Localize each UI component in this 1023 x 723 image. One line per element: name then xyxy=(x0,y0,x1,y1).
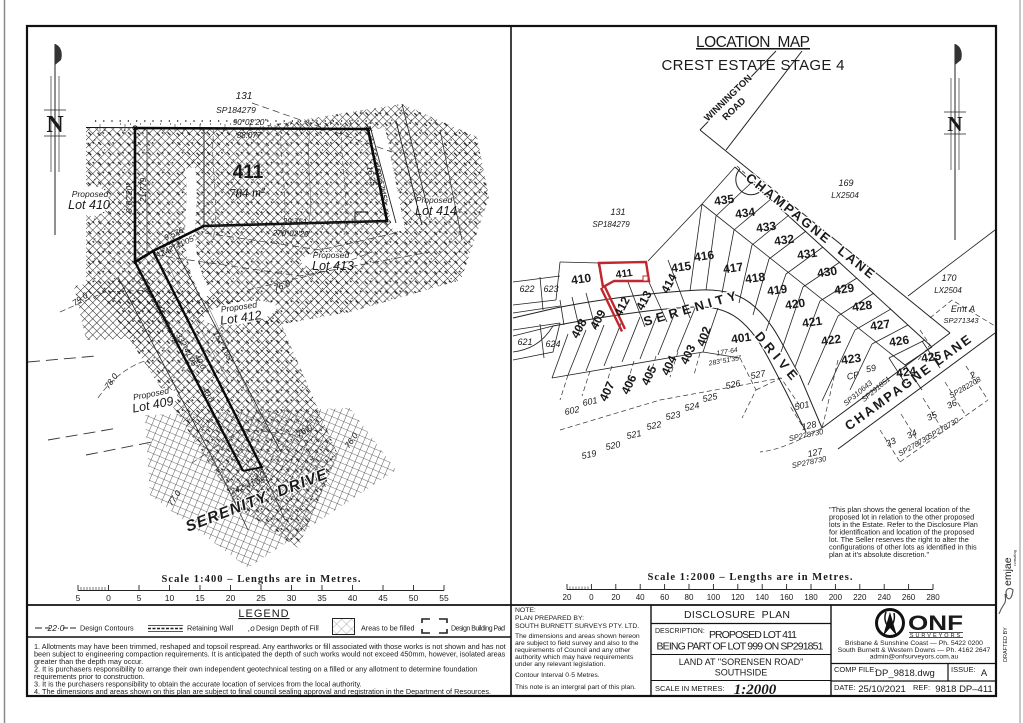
svg-text:411: 411 xyxy=(233,162,264,183)
svg-text:SOUTH BURNETT SURVEYS PTY. LTD: SOUTH BURNETT SURVEYS PTY. LTD. xyxy=(515,623,639,630)
svg-text:427: 427 xyxy=(869,317,891,334)
svg-text:409: 409 xyxy=(587,307,609,332)
svg-text:Design Depth of Fill: Design Depth of Fill xyxy=(256,624,319,633)
svg-text:50: 50 xyxy=(409,593,419,603)
svg-text:405: 405 xyxy=(638,363,659,387)
svg-text:SOUTHSIDE: SOUTHSIDE xyxy=(715,668,768,678)
svg-text:80: 80 xyxy=(685,593,694,602)
svg-text:260: 260 xyxy=(902,593,916,602)
svg-text:406: 406 xyxy=(618,372,639,396)
svg-text:,o: ,o xyxy=(248,624,255,633)
svg-text:0: 0 xyxy=(106,593,111,603)
svg-text:SP184279: SP184279 xyxy=(216,105,256,115)
svg-text:DESCRIPTION:: DESCRIPTION: xyxy=(655,628,705,635)
svg-text:131: 131 xyxy=(610,207,625,217)
svg-text:15: 15 xyxy=(195,593,205,603)
svg-text:35: 35 xyxy=(317,593,327,603)
svg-text:623: 623 xyxy=(543,284,558,294)
svg-text:20: 20 xyxy=(611,593,620,602)
svg-text:526: 526 xyxy=(725,378,742,391)
svg-text:Areas to be filled: Areas to be filled xyxy=(361,624,415,633)
svg-text:40: 40 xyxy=(636,593,645,602)
svg-text:Lot 414: Lot 414 xyxy=(415,204,457,218)
svg-text:COMP FILE:: COMP FILE: xyxy=(834,665,876,674)
svg-text:Retaining Wall: Retaining Wall xyxy=(187,624,233,633)
svg-text:under any relevant legislation: under any relevant legislation. xyxy=(515,661,605,668)
svg-text:Design Contours: Design Contours xyxy=(80,624,134,633)
svg-text:PROPOSED LOT 411: PROPOSED LOT 411 xyxy=(709,629,797,641)
svg-text:SP282208: SP282208 xyxy=(948,374,984,400)
svg-text:131: 131 xyxy=(236,91,253,102)
svg-text:435: 435 xyxy=(713,192,735,209)
svg-text:PLAN PREPARED BY:: PLAN PREPARED BY: xyxy=(515,615,584,622)
svg-text:160: 160 xyxy=(780,593,794,602)
svg-text:424: 424 xyxy=(895,364,917,381)
svg-text:LX2504: LX2504 xyxy=(831,191,859,200)
svg-text:LOCATION MAP: LOCATION MAP xyxy=(696,34,810,51)
svg-text:CREST ESTATE STAGE 4: CREST ESTATE STAGE 4 xyxy=(662,57,845,74)
svg-text:417: 417 xyxy=(722,260,744,277)
svg-text:78.0: 78.0 xyxy=(102,371,120,391)
svg-text:NOTE:: NOTE: xyxy=(515,607,536,614)
svg-text:SP271343: SP271343 xyxy=(943,316,979,325)
svg-text:180: 180 xyxy=(804,593,818,602)
svg-text:0: 0 xyxy=(589,593,594,602)
svg-text:SURVEYORS: SURVEYORS xyxy=(910,633,962,639)
svg-text:LEGEND: LEGEND xyxy=(238,608,289,620)
svg-text:A: A xyxy=(981,668,988,679)
svg-text:401: 401 xyxy=(730,330,752,347)
svg-text:527: 527 xyxy=(750,368,768,381)
svg-text:784 m²: 784 m² xyxy=(229,184,267,201)
svg-text:524: 524 xyxy=(684,400,701,413)
svg-text:403: 403 xyxy=(677,342,698,366)
svg-text:40: 40 xyxy=(348,593,358,603)
svg-text:consulting: consulting xyxy=(1013,550,1017,566)
svg-text:9818 DP–411: 9818 DP–411 xyxy=(935,684,992,695)
svg-text:The dimensions and areas shown: The dimensions and areas shown hereon xyxy=(515,633,640,640)
svg-text:N: N xyxy=(46,112,64,138)
svg-text:220: 220 xyxy=(853,593,867,602)
svg-text:plan at it's absolute discreti: plan at it's absolute discretion." xyxy=(829,550,930,559)
svg-text:240: 240 xyxy=(878,593,892,602)
svg-text:Lot 413: Lot 413 xyxy=(312,259,354,273)
svg-text:59: 59 xyxy=(865,363,877,375)
svg-text:ISSUE:: ISSUE: xyxy=(951,665,976,674)
svg-text:413: 413 xyxy=(633,288,655,313)
svg-text:Contour Interval 0·5 Metres.: Contour Interval 0·5 Metres. xyxy=(515,672,600,679)
svg-text:407: 407 xyxy=(596,379,617,403)
svg-text:BEING PART OF LOT 999 ON SP291: BEING PART OF LOT 999 ON SP291851 xyxy=(657,641,824,653)
svg-text:410: 410 xyxy=(570,271,592,288)
svg-text:LAND AT "SORENSEN ROAD": LAND AT "SORENSEN ROAD" xyxy=(679,657,804,667)
svg-text:426: 426 xyxy=(888,333,910,350)
svg-text:415: 415 xyxy=(670,259,692,276)
svg-text:169: 169 xyxy=(838,178,853,188)
svg-text:421: 421 xyxy=(801,314,823,331)
svg-text:20: 20 xyxy=(563,593,572,602)
svg-text:520: 520 xyxy=(605,439,622,452)
svg-text:270°02'20": 270°02'20" xyxy=(271,228,312,238)
svg-text:SP184279: SP184279 xyxy=(592,220,630,229)
svg-text:523: 523 xyxy=(665,409,682,422)
svg-text:45: 45 xyxy=(378,593,388,603)
svg-text:Design Building Pad: Design Building Pad xyxy=(451,626,505,633)
svg-text:55: 55 xyxy=(439,593,449,603)
svg-text:280: 280 xyxy=(926,593,940,602)
svg-text:432: 432 xyxy=(773,232,795,249)
svg-text:ONF: ONF xyxy=(908,612,963,635)
svg-text:10: 10 xyxy=(165,593,175,603)
svg-text:622: 622 xyxy=(519,284,534,294)
svg-text:434: 434 xyxy=(734,205,756,222)
svg-text:admin@onfsurveyors.com.au: admin@onfsurveyors.com.au xyxy=(870,654,959,661)
svg-text:120: 120 xyxy=(731,593,745,602)
svg-text:522: 522 xyxy=(646,419,663,432)
svg-text:LX2504: LX2504 xyxy=(934,286,962,295)
svg-text:0°02'20": 0°02'20" xyxy=(125,182,134,213)
svg-text:431: 431 xyxy=(796,246,818,263)
svg-text:433: 433 xyxy=(755,219,777,236)
svg-text:418: 418 xyxy=(744,270,766,287)
svg-text:422: 422 xyxy=(820,332,842,349)
svg-text:140: 140 xyxy=(756,593,770,602)
svg-text:22·0: 22·0 xyxy=(46,623,64,633)
svg-text:5: 5 xyxy=(137,593,142,603)
svg-text:525: 525 xyxy=(702,391,720,404)
svg-text:38.077: 38.077 xyxy=(237,131,262,140)
svg-text:519: 519 xyxy=(581,448,598,461)
svg-text:4. The dimensions and areas sh: 4. The dimensions and areas shown on thi… xyxy=(34,687,491,696)
svg-text:29.751: 29.751 xyxy=(282,217,308,227)
svg-text:419: 419 xyxy=(766,282,788,299)
svg-text:60: 60 xyxy=(660,593,669,602)
svg-text:25: 25 xyxy=(256,593,266,603)
svg-text:DATE:: DATE: xyxy=(834,683,856,692)
svg-text:DP_9818.dwg: DP_9818.dwg xyxy=(875,668,935,679)
svg-text:DISCLOSURE PLAN: DISCLOSURE PLAN xyxy=(684,609,790,621)
svg-text:Brisbane & Sunshine Coast — Ph: Brisbane & Sunshine Coast — Ph. 5422 020… xyxy=(845,640,983,647)
svg-text:90°02'20": 90°02'20" xyxy=(233,118,268,127)
svg-text:170: 170 xyxy=(941,273,956,283)
svg-text:430: 430 xyxy=(816,264,838,281)
svg-text:429: 429 xyxy=(833,281,855,298)
svg-text:21.779: 21.779 xyxy=(139,177,148,203)
svg-text:420: 420 xyxy=(784,296,806,313)
svg-text:SERENITY: SERENITY xyxy=(642,288,739,329)
svg-text:621: 621 xyxy=(517,337,532,347)
svg-text:624: 624 xyxy=(545,339,560,349)
svg-text:5: 5 xyxy=(76,593,81,603)
svg-text:Emt A: Emt A xyxy=(951,304,975,314)
svg-text:Scale 1:2000 – Lengths are in: Scale 1:2000 – Lengths are in Metres. xyxy=(648,572,853,583)
svg-text:SCALE IN METRES:: SCALE IN METRES: xyxy=(655,684,725,693)
svg-text:428: 428 xyxy=(851,298,873,315)
svg-text:501: 501 xyxy=(794,399,811,412)
svg-text:601: 601 xyxy=(582,395,599,408)
svg-text:20: 20 xyxy=(226,593,236,603)
svg-text:602: 602 xyxy=(564,404,581,417)
svg-text:25/10/2021: 25/10/2021 xyxy=(858,684,906,695)
svg-text:200: 200 xyxy=(829,593,843,602)
svg-text:Lot 410: Lot 410 xyxy=(68,198,110,212)
svg-text:1:2000: 1:2000 xyxy=(734,682,777,698)
svg-text:DRAFTED BY: DRAFTED BY xyxy=(1003,627,1009,662)
svg-text:are subject to field survey an: are subject to field survey and also to … xyxy=(515,640,639,647)
svg-text:30: 30 xyxy=(287,593,297,603)
svg-text:This note is an intergral part: This note is an intergral part of this p… xyxy=(515,684,636,691)
svg-text:CP: CP xyxy=(846,369,860,381)
svg-text:Scale 1:400 – Lengths are in M: Scale 1:400 – Lengths are in Metres. xyxy=(162,574,361,585)
svg-text:100: 100 xyxy=(707,593,721,602)
svg-text:423: 423 xyxy=(840,351,862,368)
svg-text:REF:: REF: xyxy=(913,683,930,692)
svg-text:416: 416 xyxy=(693,248,715,265)
svg-text:33: 33 xyxy=(884,436,897,449)
svg-text:521: 521 xyxy=(626,428,643,441)
svg-text:requirements of Council and an: requirements of Council and any other xyxy=(515,647,631,654)
svg-text:425: 425 xyxy=(920,349,942,366)
svg-text:N: N xyxy=(947,112,962,136)
svg-text:authority which may have requi: authority which may have requirements xyxy=(515,654,634,661)
svg-text:411: 411 xyxy=(615,267,634,281)
